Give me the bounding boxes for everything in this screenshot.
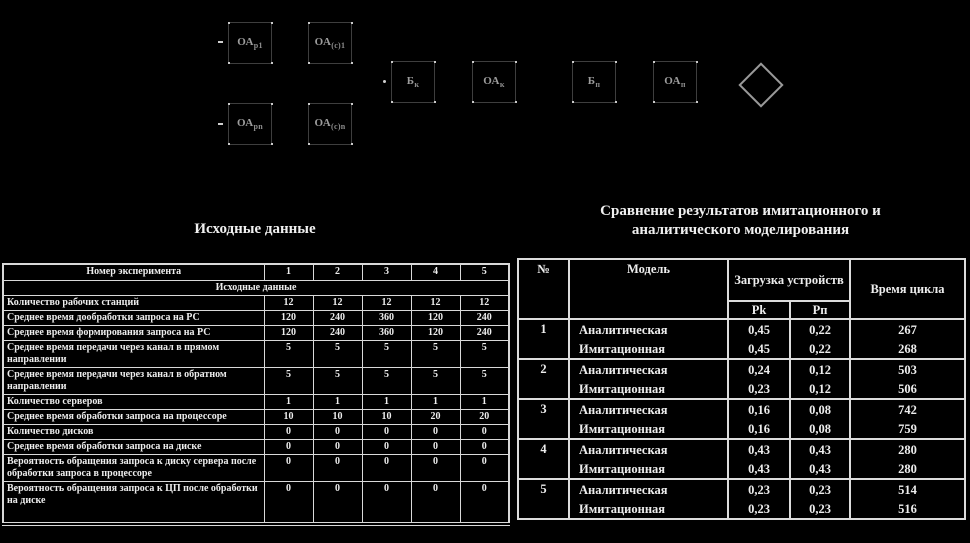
connector-tick: [218, 41, 223, 43]
cycle-time-value: 280: [850, 459, 965, 479]
parameter-value: 5: [411, 341, 460, 368]
cycle-time-value: 742: [850, 399, 965, 419]
parameter-value: 0: [362, 425, 411, 440]
pn-value: 0,43: [790, 459, 850, 479]
parameter-value: 0: [313, 482, 362, 525]
pk-value: 0,24: [728, 359, 790, 379]
parameter-row: Среднее время формирования запроса на РС…: [3, 326, 509, 341]
box-label: ОА(с)1: [315, 36, 346, 50]
pn-value: 0,23: [790, 499, 850, 519]
parameter-row: Среднее время передачи через канал в пря…: [3, 341, 509, 368]
section-header-label: Исходные данные: [3, 281, 509, 296]
pk-value: 0,16: [728, 419, 790, 439]
parameter-value: 0: [460, 482, 509, 525]
parameter-row: Вероятность обращения запроса к диску се…: [3, 455, 509, 482]
comparison-title-line2: аналитического моделирования: [517, 221, 964, 240]
parameter-label: Количество серверов: [3, 395, 264, 410]
pn-value: 0,12: [790, 359, 850, 379]
parameter-value: 5: [460, 341, 509, 368]
cycle-time-value: 514: [850, 479, 965, 499]
experiment-index: 1: [518, 319, 569, 359]
comparison-row-simulation: Имитационная 0,23 0,12 506: [518, 379, 965, 399]
model-name: Аналитическая: [569, 479, 728, 499]
parameter-value: 360: [362, 326, 411, 341]
parameter-value: 5: [362, 341, 411, 368]
parameter-label: Вероятность обращения запроса к диску се…: [3, 455, 264, 482]
parameter-row: Количество серверов 1 1 1 1 1: [3, 395, 509, 410]
parameter-value: 5: [460, 368, 509, 395]
parameter-value: 12: [264, 296, 313, 311]
parameter-label: Количество дисков: [3, 425, 264, 440]
parameter-value: 120: [264, 326, 313, 341]
comparison-row-simulation: Имитационная 0,16 0,08 759: [518, 419, 965, 439]
parameter-value: 12: [460, 296, 509, 311]
comparison-row-analytical: 3 Аналитическая 0,16 0,08 742: [518, 399, 965, 419]
parameter-value: 12: [362, 296, 411, 311]
cycle-time-value: 506: [850, 379, 965, 399]
parameter-value: 120: [411, 326, 460, 341]
pk-value: 0,45: [728, 339, 790, 359]
parameter-value: 5: [313, 341, 362, 368]
pn-value: 0,23: [790, 479, 850, 499]
pn-value: 0,12: [790, 379, 850, 399]
parameter-label: Вероятность обращения запроса к ЦП после…: [3, 482, 264, 525]
pn-value: 0,08: [790, 399, 850, 419]
parameter-label: Среднее время обработки запроса на диске: [3, 440, 264, 455]
comparison-table: № Модель Загрузка устройств Время цикла …: [517, 258, 966, 520]
col-header-number: №: [518, 259, 569, 319]
box-label: ОАр1: [237, 36, 263, 50]
model-name: Имитационная: [569, 459, 728, 479]
model-name: Имитационная: [569, 339, 728, 359]
parameter-value: 0: [313, 455, 362, 482]
parameter-value: 0: [460, 425, 509, 440]
pn-value: 0,22: [790, 339, 850, 359]
parameter-row: Количество дисков 0 0 0 0 0: [3, 425, 509, 440]
parameter-value: 0: [362, 440, 411, 455]
parameter-value: 0: [264, 482, 313, 525]
cycle-time-value: 280: [850, 439, 965, 459]
parameter-value: 0: [362, 455, 411, 482]
parameter-value: 12: [411, 296, 460, 311]
model-name: Аналитическая: [569, 359, 728, 379]
parameter-label: Среднее время формирования запроса на РС: [3, 326, 264, 341]
col-header-device-load: Загрузка устройств: [728, 259, 850, 301]
comparison-row-simulation: Имитационная 0,43 0,43 280: [518, 459, 965, 479]
pk-value: 0,23: [728, 479, 790, 499]
model-name: Аналитическая: [569, 399, 728, 419]
parameter-value: 0: [411, 482, 460, 525]
parameter-value: 5: [264, 368, 313, 395]
comparison-row-analytical: 4 Аналитическая 0,43 0,43 280: [518, 439, 965, 459]
experiment-index: 5: [518, 479, 569, 519]
parameter-value: 0: [460, 440, 509, 455]
parameter-value: 1: [460, 395, 509, 410]
experiment-index: 3: [518, 399, 569, 439]
parameter-value: 120: [264, 311, 313, 326]
box-label: ОАк: [483, 75, 504, 89]
model-name: Аналитическая: [569, 439, 728, 459]
pk-value: 0,43: [728, 459, 790, 479]
diagram-box-channel-oa: ОАк: [472, 61, 516, 103]
parameter-value: 0: [411, 455, 460, 482]
parameter-value: 20: [411, 410, 460, 425]
experiment-number: 4: [411, 264, 460, 281]
parameter-value: 5: [264, 341, 313, 368]
parameter-value: 1: [411, 395, 460, 410]
parameter-value: 0: [313, 440, 362, 455]
parameter-row: Среднее время обработки запроса на диске…: [3, 440, 509, 455]
parameter-value: 1: [264, 395, 313, 410]
parameter-value: 20: [460, 410, 509, 425]
box-label: Бк: [407, 75, 420, 89]
comparison-row-analytical: 1 Аналитическая 0,45 0,22 267: [518, 319, 965, 339]
comparison-title-line1: Сравнение результатов имитационного и: [517, 202, 964, 221]
box-label: Бп: [588, 75, 601, 89]
parameter-value: 240: [313, 326, 362, 341]
box-label: ОА(с)n: [314, 117, 345, 131]
parameter-value: 5: [362, 368, 411, 395]
cycle-time-value: 267: [850, 319, 965, 339]
comparison-row-simulation: Имитационная 0,23 0,23 516: [518, 499, 965, 519]
parameter-value: 0: [411, 440, 460, 455]
cycle-time-value: 759: [850, 419, 965, 439]
experiment-index: 2: [518, 359, 569, 399]
model-name: Аналитическая: [569, 319, 728, 339]
model-name: Имитационная: [569, 379, 728, 399]
initial-data-table: Номер эксперимента 1 2 3 4 5 Исходные да…: [2, 263, 510, 526]
parameter-value: 0: [411, 425, 460, 440]
pk-value: 0,16: [728, 399, 790, 419]
model-name: Имитационная: [569, 419, 728, 439]
parameter-value: 5: [313, 368, 362, 395]
parameter-label: Среднее время передачи через канал в пря…: [3, 341, 264, 368]
parameter-value: 12: [313, 296, 362, 311]
comparison-title: Сравнение результатов имитационного и ан…: [517, 202, 964, 240]
col-header-model: Модель: [569, 259, 728, 319]
pk-value: 0,45: [728, 319, 790, 339]
parameter-value: 1: [313, 395, 362, 410]
experiment-header-label: Номер эксперимента: [3, 264, 264, 281]
box-label: ОАп: [664, 75, 685, 89]
parameter-value: 10: [264, 410, 313, 425]
pk-value: 0,23: [728, 499, 790, 519]
diagram-box-oa-c1: ОА(с)1: [308, 22, 352, 64]
section-header-row: Исходные данные: [3, 281, 509, 296]
comparison-header-row: № Модель Загрузка устройств Время цикла: [518, 259, 965, 301]
diagram-box-processor-buffer: Бп: [572, 61, 616, 103]
experiment-index: 4: [518, 439, 569, 479]
initial-data-title: Исходные данные: [0, 221, 510, 238]
parameter-value: 10: [313, 410, 362, 425]
parameter-value: 0: [313, 425, 362, 440]
parameter-value: 10: [362, 410, 411, 425]
parameter-value: 0: [264, 425, 313, 440]
box-label: ОАрn: [237, 117, 263, 131]
parameter-row: Количество рабочих станций 12 12 12 12 1…: [3, 296, 509, 311]
pk-value: 0,43: [728, 439, 790, 459]
parameter-value: 360: [362, 311, 411, 326]
parameter-value: 240: [313, 311, 362, 326]
diagram-box-processor-oa: ОАп: [653, 61, 697, 103]
parameter-label: Среднее время передачи через канал в обр…: [3, 368, 264, 395]
parameter-value: 240: [460, 311, 509, 326]
document-page: ОАр1 ОА(с)1 ОАрn ОА(с)n Бк ОАк Бп ОАп Ис…: [0, 0, 970, 543]
parameter-label: Количество рабочих станций: [3, 296, 264, 311]
diagram-box-channel-buffer: Бк: [391, 61, 435, 103]
experiment-number: 1: [264, 264, 313, 281]
parameter-value: 0: [362, 482, 411, 525]
parameter-value: 1: [362, 395, 411, 410]
cycle-time-value: 503: [850, 359, 965, 379]
diagram-box-oa-p1: ОАр1: [228, 22, 272, 64]
pn-value: 0,08: [790, 419, 850, 439]
experiment-number: 5: [460, 264, 509, 281]
connector-tick: [218, 123, 223, 125]
cycle-time-value: 516: [850, 499, 965, 519]
parameter-value: 120: [411, 311, 460, 326]
parameter-value: 0: [264, 440, 313, 455]
experiment-number: 2: [313, 264, 362, 281]
comparison-row-analytical: 5 Аналитическая 0,23 0,23 514: [518, 479, 965, 499]
parameter-label: Среднее время дообработки запроса на РС: [3, 311, 264, 326]
parameter-value: 5: [411, 368, 460, 395]
parameter-label: Среднее время обработки запроса на проце…: [3, 410, 264, 425]
parameter-row: Среднее время передачи через канал в обр…: [3, 368, 509, 395]
col-header-pn: Pп: [790, 301, 850, 319]
diagram-box-oa-pn: ОАрn: [228, 103, 272, 145]
experiment-header-row: Номер эксперимента 1 2 3 4 5: [3, 264, 509, 281]
diagram-box-oa-cn: ОА(с)n: [308, 103, 352, 145]
decision-diamond: [738, 62, 783, 107]
pk-value: 0,23: [728, 379, 790, 399]
parameter-value: 0: [460, 455, 509, 482]
model-name: Имитационная: [569, 499, 728, 519]
parameter-value: 240: [460, 326, 509, 341]
col-header-cycle-time: Время цикла: [850, 259, 965, 319]
pn-value: 0,43: [790, 439, 850, 459]
parameter-row: Среднее время обработки запроса на проце…: [3, 410, 509, 425]
cycle-time-value: 268: [850, 339, 965, 359]
parameter-row: Среднее время дообработки запроса на РС …: [3, 311, 509, 326]
comparison-row-analytical: 2 Аналитическая 0,24 0,12 503: [518, 359, 965, 379]
parameter-value: 0: [264, 455, 313, 482]
comparison-row-simulation: Имитационная 0,45 0,22 268: [518, 339, 965, 359]
connector-arrowhead: [383, 80, 386, 83]
experiment-number: 3: [362, 264, 411, 281]
pn-value: 0,22: [790, 319, 850, 339]
col-header-pk: Pk: [728, 301, 790, 319]
parameter-row: Вероятность обращения запроса к ЦП после…: [3, 482, 509, 525]
